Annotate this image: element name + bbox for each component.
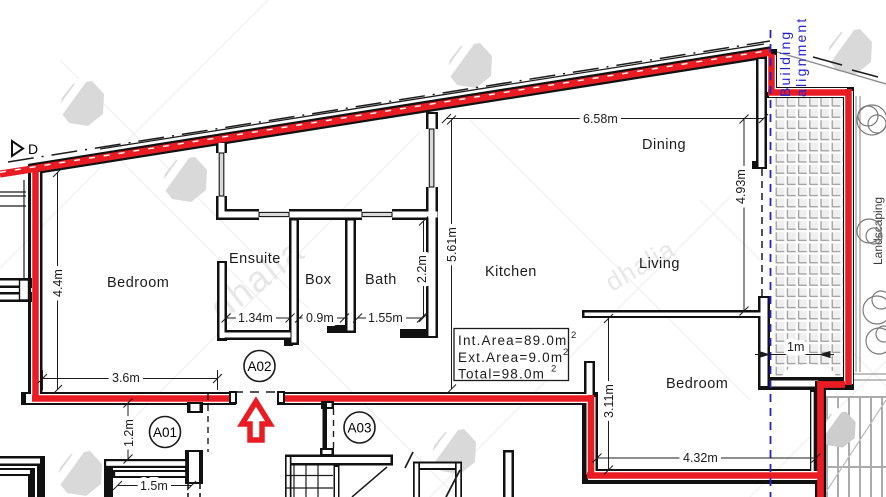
svg-text:4.32m: 4.32m	[683, 451, 718, 465]
svg-text:Ext.Area=9.0m: Ext.Area=9.0m	[458, 350, 563, 365]
svg-text:2: 2	[551, 364, 556, 375]
svg-text:6.58m: 6.58m	[583, 112, 618, 126]
svg-text:2: 2	[571, 330, 576, 341]
svg-text:A01: A01	[153, 425, 177, 440]
svg-text:1.55m: 1.55m	[368, 311, 403, 325]
svg-text:Landscaping: Landscaping	[871, 197, 885, 265]
svg-text:1.2m: 1.2m	[122, 419, 136, 447]
svg-text:0.9m: 0.9m	[306, 311, 334, 325]
svg-text:4.4m: 4.4m	[51, 269, 65, 297]
svg-text:Kitchen: Kitchen	[485, 264, 537, 280]
svg-text:A03: A03	[347, 421, 371, 436]
svg-text:Dining: Dining	[642, 137, 686, 153]
svg-text:2.2m: 2.2m	[415, 255, 429, 283]
svg-text:Living: Living	[639, 256, 680, 272]
svg-text:Box: Box	[305, 272, 332, 288]
svg-text:5.61m: 5.61m	[445, 227, 459, 262]
svg-text:Building: Building	[777, 30, 793, 97]
svg-text:2: 2	[563, 347, 568, 358]
svg-text:Total=98.0m: Total=98.0m	[458, 367, 545, 382]
svg-text:3.6m: 3.6m	[112, 371, 140, 385]
svg-text:alignment: alignment	[793, 16, 809, 97]
svg-text:Bath: Bath	[365, 272, 397, 288]
svg-text:Int.Area=89.0m: Int.Area=89.0m	[458, 333, 567, 348]
svg-text:1m: 1m	[787, 340, 804, 354]
svg-text:4.93m: 4.93m	[734, 169, 748, 204]
svg-text:1.34m: 1.34m	[238, 311, 273, 325]
svg-text:Bedroom: Bedroom	[107, 275, 169, 291]
svg-text:D: D	[28, 141, 38, 157]
svg-text:1.5m: 1.5m	[140, 479, 168, 493]
svg-text:Bedroom: Bedroom	[666, 376, 728, 392]
svg-text:A02: A02	[247, 359, 271, 374]
svg-text:Ensuite: Ensuite	[229, 251, 281, 267]
svg-text:3.11m: 3.11m	[602, 384, 616, 418]
